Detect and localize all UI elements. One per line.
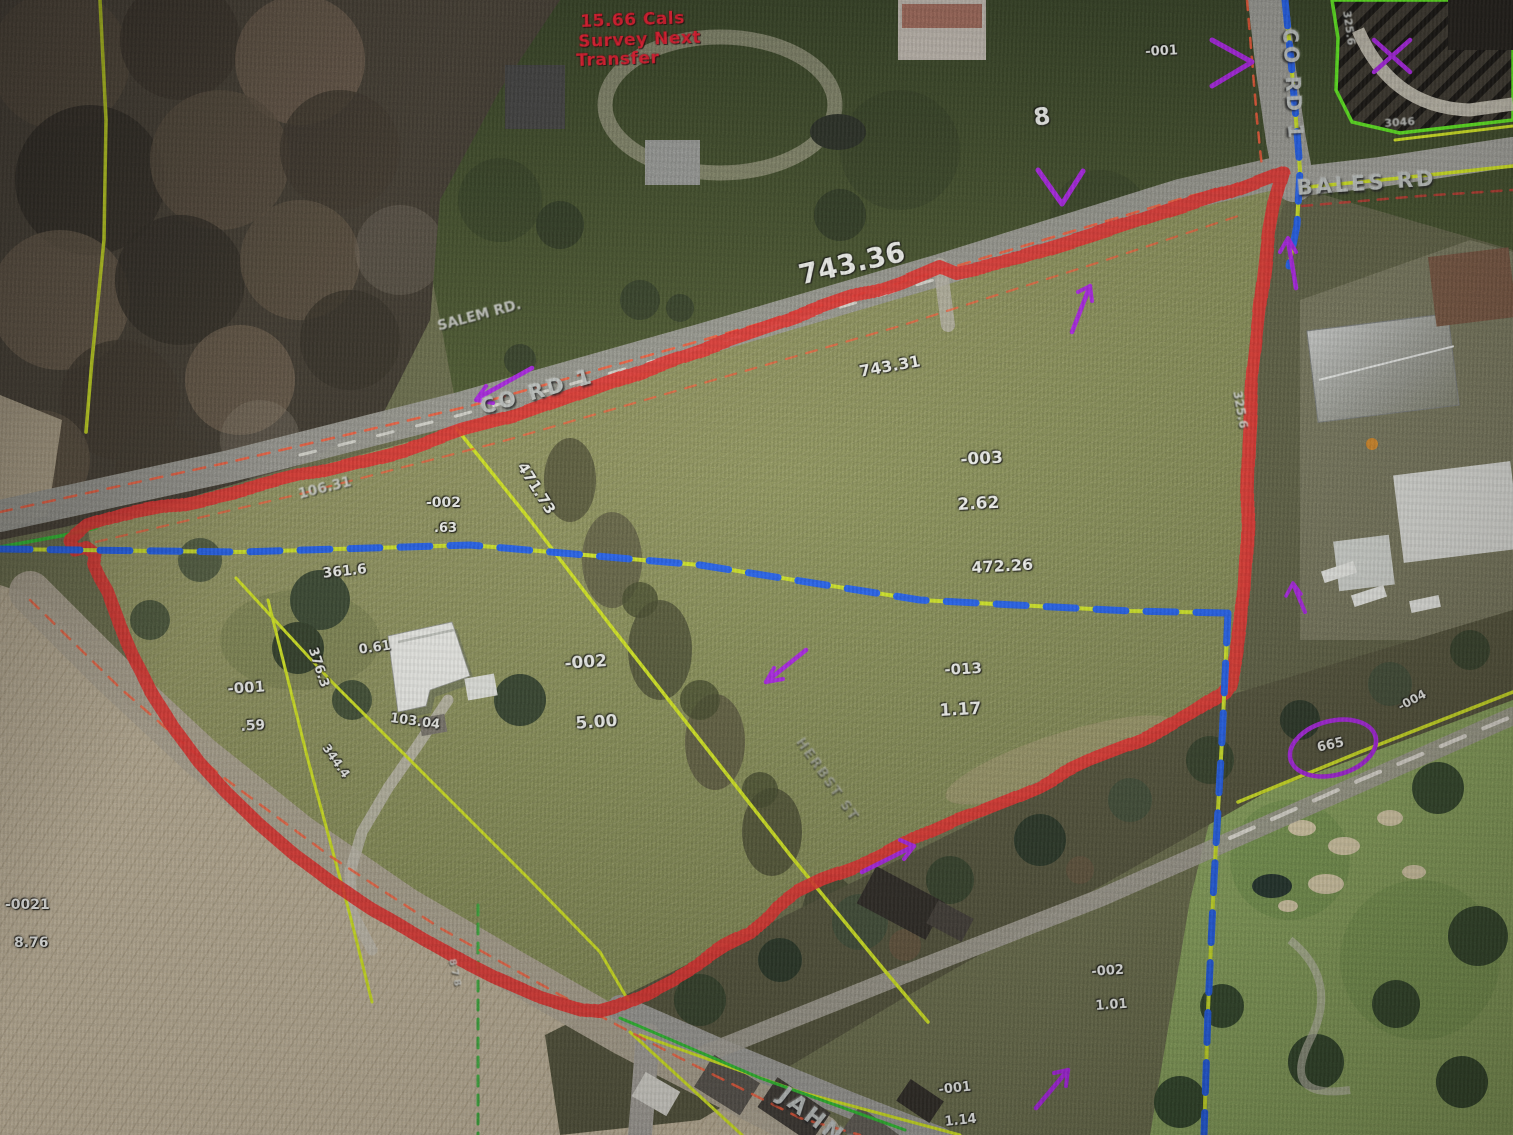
road-dash-white-corridor — [1230, 716, 1513, 838]
row-dash-bales — [1302, 190, 1513, 206]
county-line-blue-horizontal — [0, 545, 1228, 613]
annotation-arrow-road-shaft — [478, 368, 532, 398]
row-dash-cord1 — [1247, 0, 1262, 168]
row-dash-upper — [0, 182, 1250, 512]
parcel-line-left-vertical — [86, 0, 106, 432]
annotation-arrow-mid-shaft — [766, 650, 806, 682]
highlight-boundary-red — [70, 172, 1283, 1012]
parcel-line-steep — [268, 600, 372, 1002]
parcel-line-diagonal-main — [456, 428, 928, 1022]
row-dash-left-road — [30, 600, 860, 1135]
row-dash-lower — [96, 216, 1238, 542]
annotation-chevron-right — [1212, 40, 1252, 86]
road-centerline-green-jahns — [620, 1018, 905, 1130]
annotation-check-top — [1038, 170, 1083, 204]
parcel-line-hatched-south — [1395, 126, 1513, 140]
annotation-arrow-bottom-shaft — [1036, 1070, 1068, 1108]
map-overlays — [0, 0, 1513, 1135]
parcel-line-bales — [1298, 166, 1513, 188]
annotation-arrow-field-shaft — [1072, 286, 1090, 332]
gis-map-canvas[interactable]: 15.66 CalsSurvey NextTransfer743.36743.3… — [0, 0, 1513, 1135]
